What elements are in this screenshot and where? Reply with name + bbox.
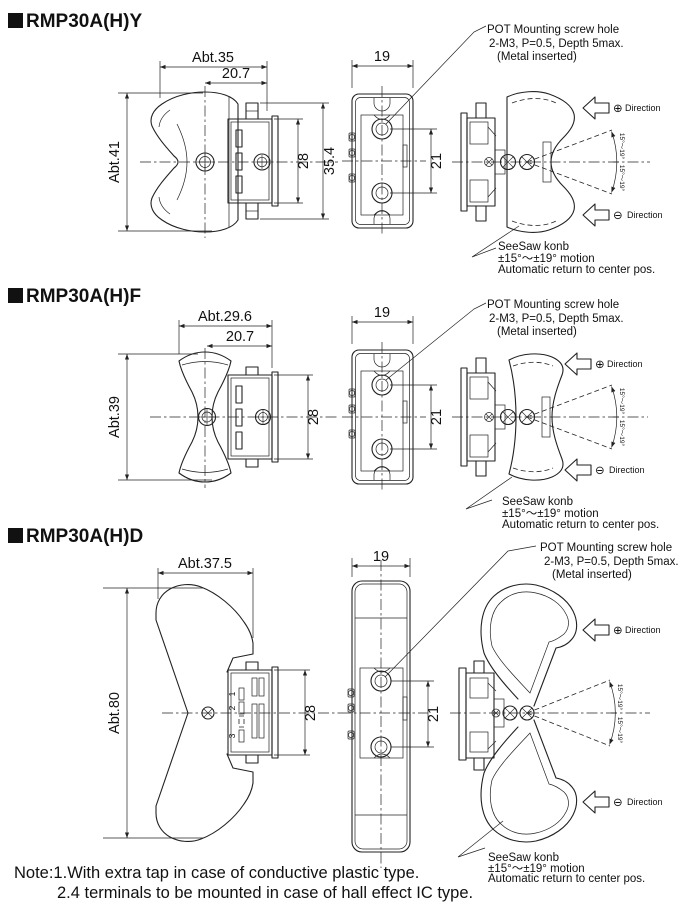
seesaw-line3: Automatic return to center pos. [488,873,645,885]
seesaw-annotation-f: SeeSaw konb ±15°〜±19° motion Automatic r… [502,496,659,531]
direction-plus-symbol: ⊕ [613,103,623,115]
dim-body-height: 28 [303,705,319,721]
seesaw-line1: SeeSaw konb [498,241,569,253]
direction-minus-symbol: ⊖ [595,465,605,477]
direction-minus-label: Direction [627,210,663,220]
arc-range-lower: 15°〜19° [618,165,626,192]
direction-minus-symbol: ⊖ [613,797,623,809]
direction-minus-arrow-icon [583,204,609,226]
direction-minus-symbol: ⊖ [613,210,623,222]
arc-range-upper: 15°〜19° [616,684,624,711]
direction-plus-symbol: ⊕ [595,359,605,371]
arc-range-lower: 15°〜19° [616,717,624,744]
technical-drawing-page: RMP30A(H)Y Abt.35 20.7 A [0,0,691,914]
seesaw-annotation-y: SeeSaw konb ±15°〜±19° motion Automatic r… [498,241,655,276]
arc-range-lower: 15°〜19° [618,420,626,447]
rear-view-f: 19 21 [342,303,486,492]
terminal-label-2: 2 [227,705,237,710]
arc-range-upper: 15°〜19° [618,133,626,160]
section-title: RMP30A(H)F [26,286,141,307]
section-marker-icon [8,13,23,28]
dim-body-height: 28 [296,153,312,169]
direction-minus-arrow-icon [565,459,591,481]
pot-hole-line1: POT Mounting screw hole [540,542,672,554]
section-title: RMP30A(H)Y [26,11,142,32]
dim-overall-height: 35.4 [322,147,338,175]
pot-hole-line2: 2-M3, P=0.5, Depth 5max. [489,38,624,50]
dim-knob-width: 20.7 [222,66,250,82]
footer-note: Note:1.With extra tap in case of conduct… [14,864,473,902]
pot-hole-annotation-y: POT Mounting screw hole 2-M3, P=0.5, Dep… [487,24,624,63]
pot-hole-annotation-f: POT Mounting screw hole 2-M3, P=0.5, Dep… [487,299,624,338]
dim-knob-height: Abt.39 [107,396,123,438]
dim-depth: 19 [374,305,390,321]
direction-minus-arrow-icon [583,791,609,813]
direction-plus-label: Direction [625,103,661,113]
terminal-label-1: 1 [227,691,237,696]
drawing-canvas: RMP30A(H)Y Abt.35 20.7 A [0,0,691,914]
dim-overall-width: Abt.37.5 [178,556,232,572]
direction-plus-label: Direction [625,625,661,635]
direction-plus-arrow-icon [583,619,609,641]
note-line2: 2.4 terminals to be mounted in case of h… [57,884,473,902]
section-marker-icon [8,288,23,303]
seesaw-annotation-d: SeeSaw konb ±15°〜±19° motion Automatic r… [488,852,645,885]
pot-hole-annotation-d: POT Mounting screw hole 2-M3, P=0.5, Dep… [540,542,679,581]
dim-knob-height: Abt.80 [107,692,123,734]
direction-minus-label: Direction [609,465,645,475]
front-view-f: Abt.29.6 20.7 Abt.39 28 [107,309,338,488]
hidden-terminal-slot [239,716,244,727]
section-marker-icon [8,528,23,543]
pot-hole-line2: 2-M3, P=0.5, Depth 5max. [489,313,624,325]
dim-hole-pitch: 21 [426,706,442,722]
dim-depth: 19 [373,549,389,565]
section-rmp30ahy: RMP30A(H)Y Abt.35 20.7 A [8,11,663,276]
arc-range-upper: 15°〜19° [618,388,626,415]
dim-hole-pitch: 21 [429,409,445,425]
section-rmp30ahf: RMP30A(H)F Abt.29.6 20.7 Abt.39 [8,286,659,531]
direction-plus-symbol: ⊕ [613,625,623,637]
pot-hole-line3: (Metal inserted) [497,326,577,338]
dim-knob-width: 20.7 [226,329,254,345]
side-view-d: ⊕ Direction ⊖ Direction 15°〜19° 15°〜19° [450,584,663,857]
section-rmp30ahd: RMP30A(H)D 1 2 3 Abt.37.5 Abt.80 [8,526,679,885]
direction-minus-label: Direction [627,797,663,807]
dim-body-height: 28 [306,409,322,425]
dim-overall-width: Abt.29.6 [198,309,252,325]
note-line1: Note:1.With extra tap in case of conduct… [14,864,419,882]
direction-plus-arrow-icon [565,353,591,375]
front-view-d: 1 2 3 Abt.37.5 Abt.80 28 [103,556,340,841]
seesaw-line1: SeeSaw konb [502,496,573,508]
pot-hole-line2: 2-M3, P=0.5, Depth 5max. [544,556,679,568]
dim-depth: 19 [374,49,390,65]
dim-knob-height: Abt.41 [107,141,123,183]
terminal-label-3: 3 [227,733,237,738]
pot-hole-line1: POT Mounting screw hole [487,24,619,36]
pot-hole-line1: POT Mounting screw hole [487,299,619,311]
side-view-f: ⊕ Direction ⊖ Direction 15°〜19° 15°〜19° [452,353,648,509]
section-title: RMP30A(H)D [26,526,143,547]
front-view-y: Abt.35 20.7 Abt.41 28 35.4 [107,50,338,238]
seesaw-line3: Automatic return to center pos. [502,519,659,531]
pot-hole-line3: (Metal inserted) [497,51,577,63]
dim-overall-width: Abt.35 [192,50,234,66]
direction-plus-arrow-icon [583,97,609,119]
pot-hole-line3: (Metal inserted) [552,569,632,581]
seesaw-line3: Automatic return to center pos. [498,264,655,276]
direction-plus-label: Direction [607,359,643,369]
side-view-y: ⊕ Direction ⊖ Direction 15°〜19° 15°〜19° [452,92,663,257]
dim-hole-pitch: 21 [429,153,445,169]
rear-view-y: 19 21 [342,26,486,236]
